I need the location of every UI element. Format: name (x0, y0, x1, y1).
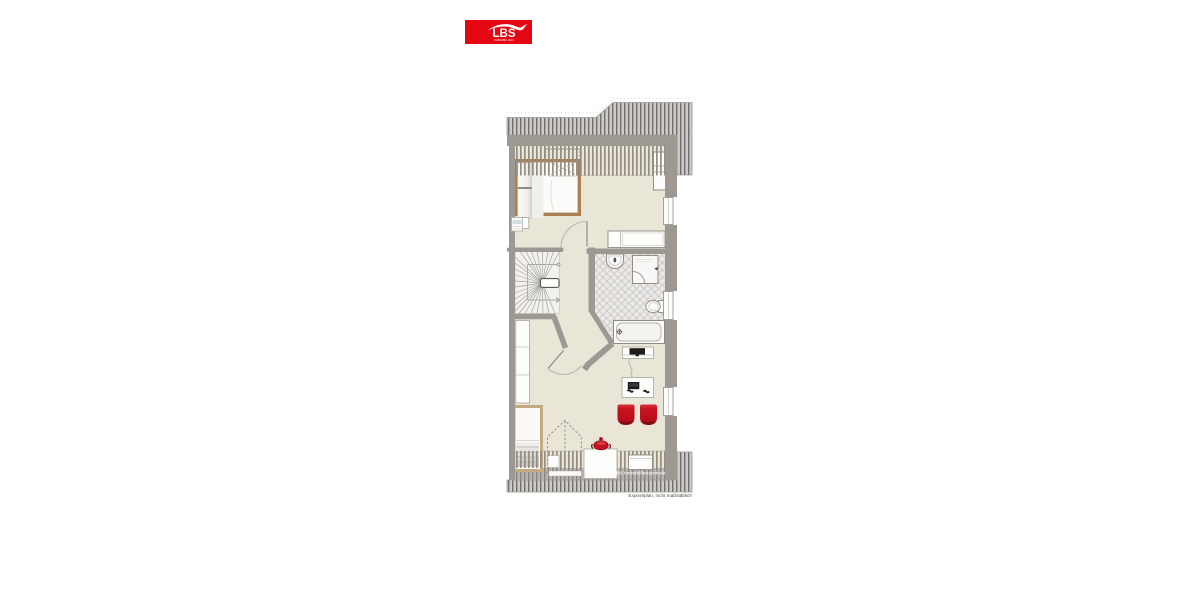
svg-text:IMMOBILIEN: IMMOBILIEN (494, 38, 514, 42)
svg-text:LBS Immobilienzentrale: LBS Immobilienzentrale (614, 471, 667, 476)
svg-text:Exposéplan, nicht maßstäblich: Exposéplan, nicht maßstäblich (628, 493, 692, 498)
